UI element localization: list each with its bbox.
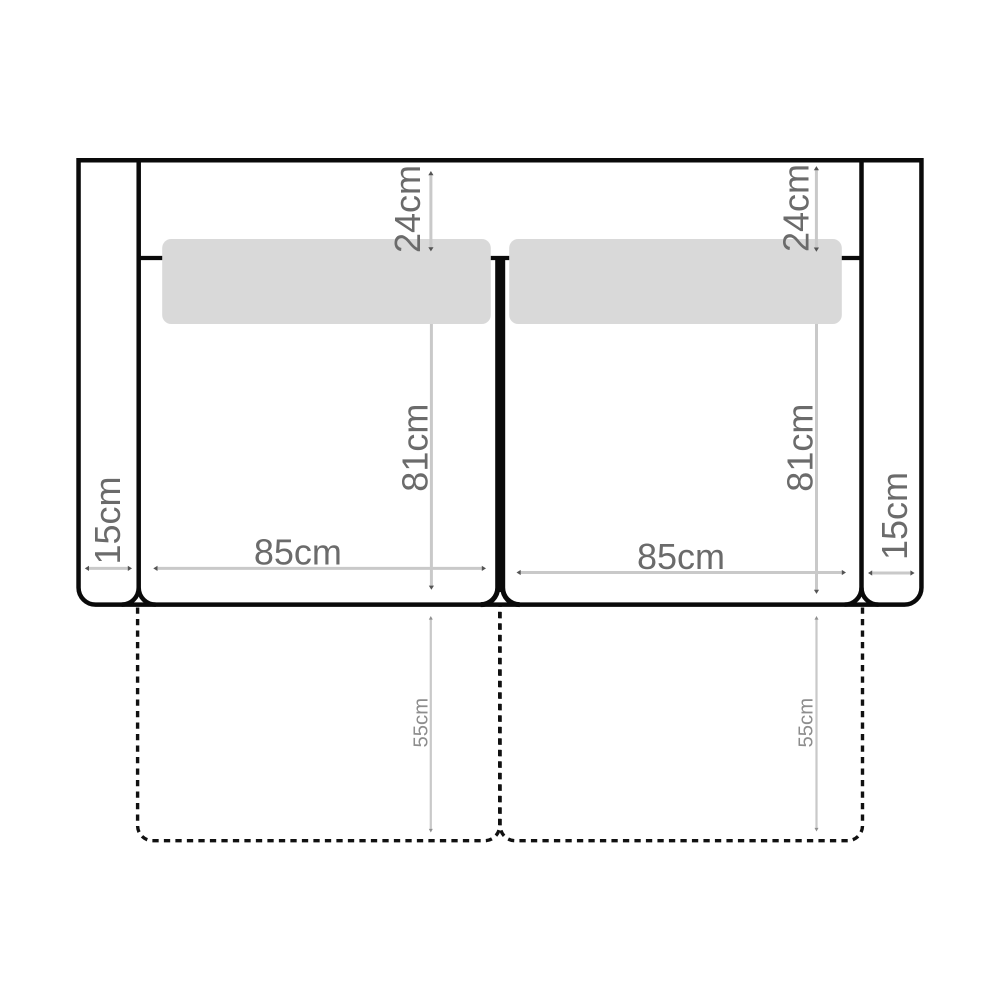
svg-text:24cm: 24cm: [387, 165, 428, 253]
svg-text:85cm: 85cm: [254, 532, 342, 573]
svg-text:15cm: 15cm: [874, 472, 915, 560]
svg-text:85cm: 85cm: [637, 536, 725, 577]
svg-text:24cm: 24cm: [776, 164, 817, 252]
svg-text:55cm: 55cm: [411, 698, 433, 748]
svg-text:81cm: 81cm: [395, 404, 436, 492]
svg-text:55cm: 55cm: [796, 698, 818, 748]
svg-text:81cm: 81cm: [780, 404, 821, 492]
svg-text:15cm: 15cm: [87, 476, 128, 564]
